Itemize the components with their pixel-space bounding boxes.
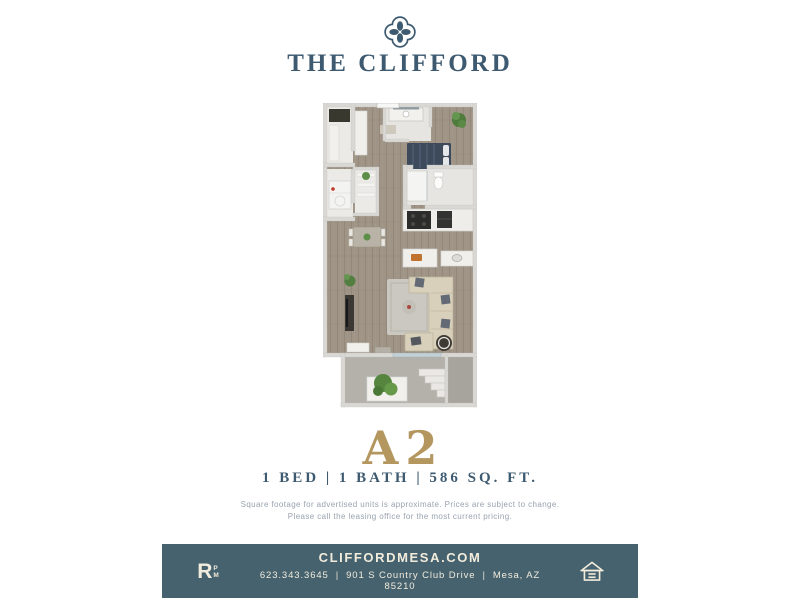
- quatrefoil-logo-icon: [383, 15, 417, 49]
- contact-line: 623.343.3645|901 S Country Club Drive|Me…: [254, 570, 546, 592]
- disclaimer-line-1: Square footage for advertised units is a…: [0, 499, 800, 511]
- disclaimer-line-2: Please call the leasing office for the m…: [0, 511, 800, 523]
- street-address: 901 S Country Club Drive: [346, 570, 475, 581]
- footer-contact-block: CLIFFORDMESA.COM 623.343.3645|901 S Coun…: [254, 550, 546, 592]
- website-text: CLIFFORDMESA.COM: [254, 550, 546, 565]
- phone-number: 623.343.3645: [260, 570, 329, 581]
- rpm-logo-sub-letters: P M: [213, 565, 218, 579]
- rpm-logo-main-letter: R: [197, 561, 212, 582]
- disclaimer-text: Square footage for advertised units is a…: [0, 499, 800, 524]
- rpm-logo-icon: R P M: [197, 561, 219, 582]
- footer-bar: R P M CLIFFORDMESA.COM 623.343.3645|901 …: [162, 544, 638, 598]
- separator: |: [482, 570, 485, 581]
- page-title: THE CLIFFORD: [0, 50, 800, 78]
- unit-name: A2: [0, 421, 800, 475]
- patio-storage-floor: [447, 355, 473, 403]
- floorplan-rendering: [323, 103, 477, 413]
- unit-specs: 1 BED | 1 BATH | 586 SQ. FT.: [0, 470, 800, 487]
- floorplan-image: [323, 103, 477, 413]
- management-logo: R P M: [162, 561, 254, 582]
- equal-housing-opportunity-icon: [546, 560, 638, 582]
- entry-door: [377, 103, 399, 108]
- separator: |: [336, 570, 339, 581]
- dining-area: [349, 227, 385, 247]
- patio-slider-door: [393, 353, 441, 357]
